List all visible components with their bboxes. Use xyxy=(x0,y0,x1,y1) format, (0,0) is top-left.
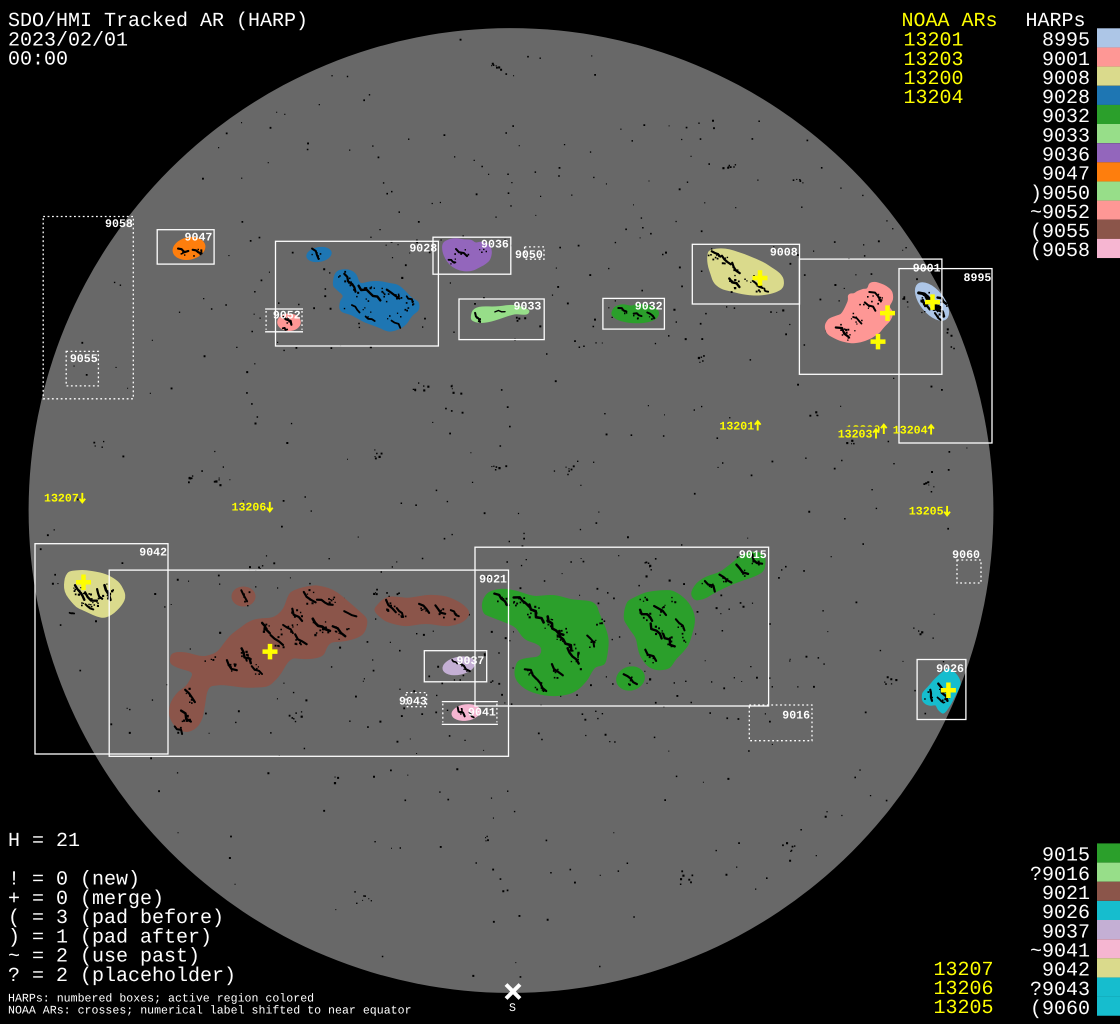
svg-text:9033: 9033 xyxy=(514,301,542,314)
svg-text:(9060: (9060 xyxy=(1030,998,1090,1021)
svg-text:13206: 13206 xyxy=(232,502,267,515)
svg-text:9060: 9060 xyxy=(952,549,980,562)
svg-text:13205: 13205 xyxy=(909,506,944,519)
svg-text:13203: 13203 xyxy=(838,429,873,442)
svg-text:13204: 13204 xyxy=(893,425,928,438)
svg-text:9036: 9036 xyxy=(481,239,509,252)
svg-text:NOAA ARs: crosses; numerical l: NOAA ARs: crosses; numerical label shift… xyxy=(8,1004,412,1017)
svg-text:9058: 9058 xyxy=(105,218,133,231)
svg-text:9043: 9043 xyxy=(399,696,427,709)
svg-text:8995: 8995 xyxy=(964,272,992,285)
svg-text:(9058: (9058 xyxy=(1030,240,1090,263)
svg-text:9001: 9001 xyxy=(913,262,941,275)
svg-text:9042: 9042 xyxy=(139,547,167,560)
svg-text:9050: 9050 xyxy=(515,249,543,262)
svg-text:9021: 9021 xyxy=(479,573,507,586)
svg-text:9028: 9028 xyxy=(409,243,437,256)
svg-text:9015: 9015 xyxy=(739,549,767,562)
svg-text:? = 2 (placeholder): ? = 2 (placeholder) xyxy=(8,965,236,988)
svg-text:00:00: 00:00 xyxy=(8,49,68,72)
svg-text:9052: 9052 xyxy=(273,310,301,323)
svg-text:13201: 13201 xyxy=(719,421,754,434)
svg-text:9055: 9055 xyxy=(70,353,98,366)
svg-text:9032: 9032 xyxy=(635,301,663,314)
svg-text:9037: 9037 xyxy=(457,655,485,668)
svg-text:13205: 13205 xyxy=(934,997,994,1020)
svg-text:13207: 13207 xyxy=(44,493,79,506)
svg-text:9047: 9047 xyxy=(185,231,213,244)
svg-text:9026: 9026 xyxy=(936,663,964,676)
svg-text:9008: 9008 xyxy=(770,247,798,260)
svg-text:9041: 9041 xyxy=(468,706,496,719)
svg-text:S: S xyxy=(509,1002,516,1015)
svg-text:H = 21: H = 21 xyxy=(8,830,80,853)
svg-text:13204: 13204 xyxy=(904,87,964,110)
svg-text:9016: 9016 xyxy=(782,710,810,723)
